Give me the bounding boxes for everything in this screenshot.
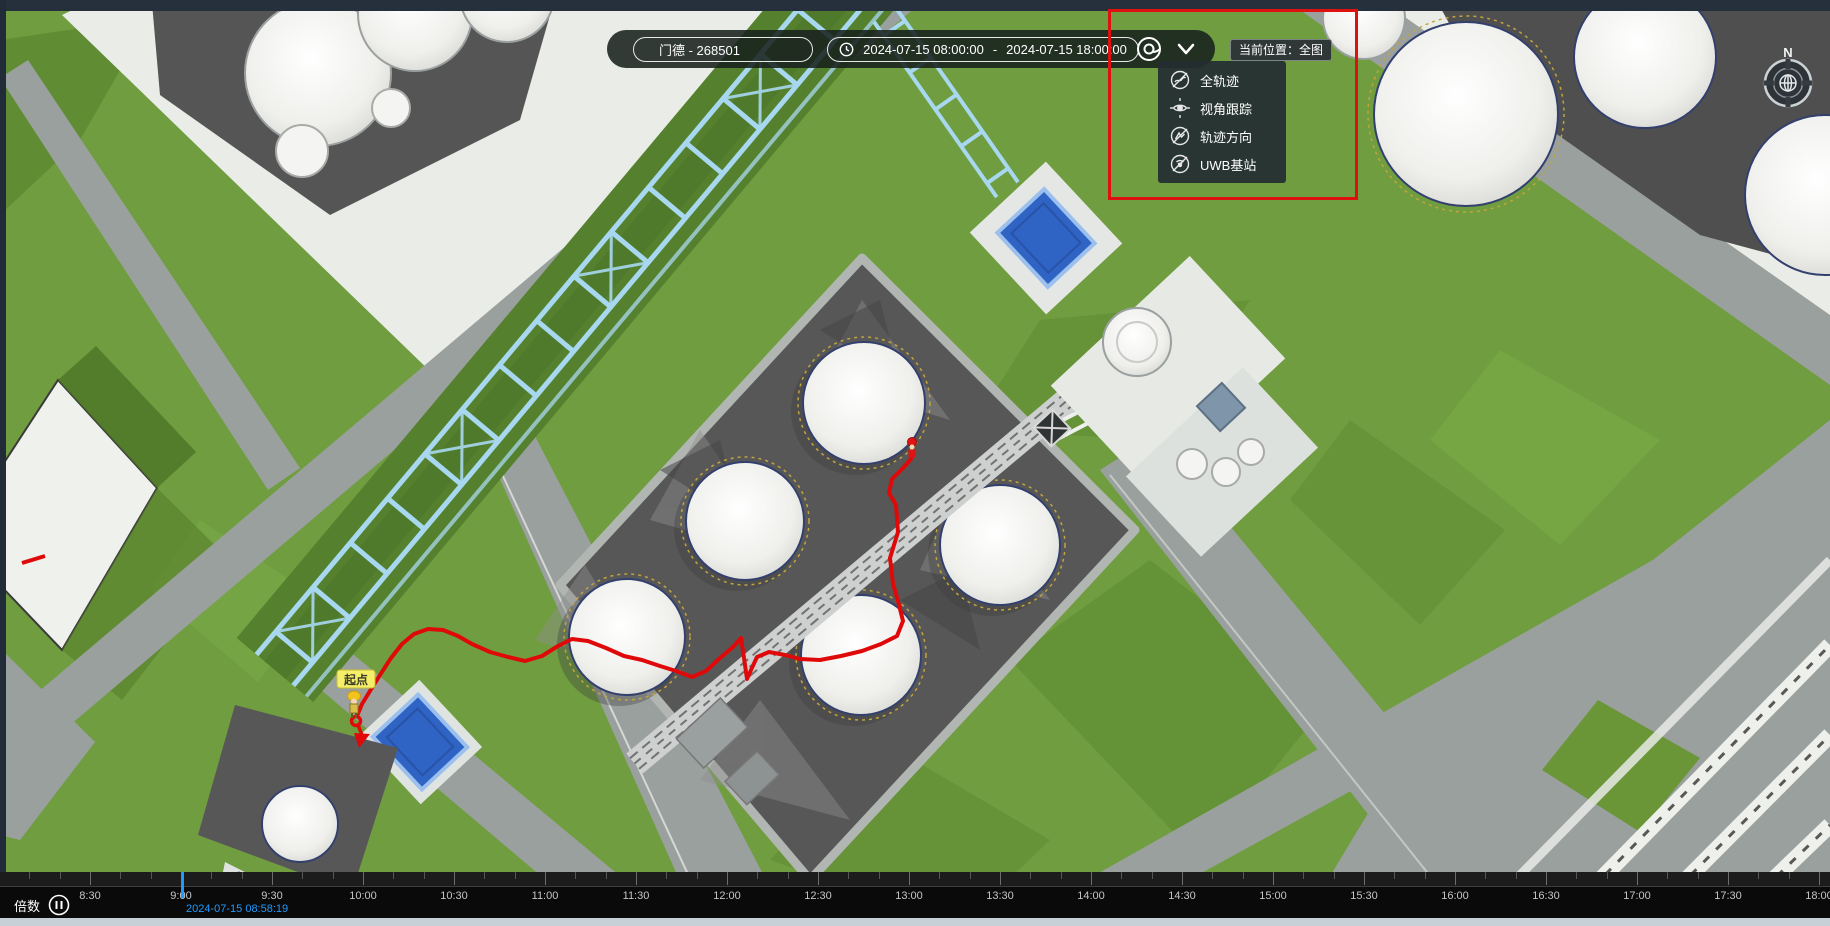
current-time-label: 2024-07-15 08:58:19 [186,903,288,915]
timeline-tick [60,872,61,879]
speed-label: 倍数 [14,896,40,915]
timeline-tick-label: 9:30 [261,890,282,902]
timeline-tick [697,872,698,879]
timeline-tick-label: 17:30 [1714,890,1742,902]
timeline-tick-label: 18:00 [1805,890,1830,902]
timeline-tick [879,872,880,879]
timeline-tick [909,872,910,885]
timeline-tick [1394,872,1395,879]
timeline-tick [545,872,546,885]
timeline-tick [1546,872,1547,885]
menu-item-track-direction[interactable]: 轨迹方向 [1158,122,1286,150]
playback-controls: 倍数 [14,894,70,916]
timeline-tick [1243,872,1244,879]
menu-item-uwb-station[interactable]: UWB基站 [1158,150,1286,178]
bottom-edge-strip [0,918,1830,926]
timeline-tick [515,872,516,879]
clock-icon [839,42,854,57]
timeline-tick [1819,872,1820,885]
timeline-tick-label: 12:00 [713,890,741,902]
timeline-tick-label: 15:30 [1350,890,1378,902]
timeline-tick [1455,872,1456,885]
timeline-tick-label: 15:00 [1259,890,1287,902]
timeline-tick [90,872,91,885]
timeline-tick [1303,872,1304,879]
time-start: 2024-07-15 08:00:00 [863,42,984,57]
timeline-tick [1485,872,1486,879]
time-end: 2024-07-15 18:00:00 [1006,42,1127,57]
time-separator: - [993,42,997,57]
menu-item-label: 视角跟踪 [1200,99,1252,118]
compass-north-label: N [1783,45,1792,60]
timeline-tick [939,872,940,879]
track-direction-icon [1169,125,1191,147]
timeline-tick [727,872,728,885]
chevron-down-icon [1173,38,1199,60]
timeline-tick [1061,872,1062,879]
timeline-tick-label: 16:30 [1532,890,1560,902]
timeline-tick [272,872,273,885]
timeline-tick [1607,872,1608,879]
timeline-tick [302,872,303,879]
timeline-bar[interactable]: 8:309:009:3010:0010:3011:0011:3012:0012:… [0,872,1830,918]
timeline-tick [484,872,485,879]
timeline-tick [1000,872,1001,885]
menu-item-label: UWB基站 [1200,155,1256,174]
pause-button[interactable] [48,894,70,916]
target-icon [1135,35,1163,63]
timeline-tick-label: 10:00 [349,890,377,902]
timeline-ruler[interactable] [0,872,1830,887]
timeline-tick [424,872,425,879]
timeline-tick [393,872,394,879]
timeline-tick-label: 13:00 [895,890,923,902]
timeline-tick [242,872,243,879]
timeline-tick [1091,872,1092,885]
timeline-tick [1789,872,1790,879]
timeline-tick-label: 8:30 [79,890,100,902]
timeline-tick [1364,872,1365,885]
timeline-tick [1637,872,1638,885]
app-stage: 起点 N 门德 - 268501 2024-07-15 08: [0,0,1830,926]
timeline-tick [606,872,607,879]
menu-item-view-tracking[interactable]: 视角跟踪 [1158,94,1286,122]
start-label: 起点 [337,670,375,688]
timeline-tick [1121,872,1122,879]
timeline-playhead[interactable] [181,872,184,898]
timeline-tick-label: 17:00 [1623,890,1651,902]
timeline-tick [1576,872,1577,879]
toolbar: 门德 - 268501 2024-07-15 08:00:00 - 2024-0… [607,30,1215,68]
start-label-text: 起点 [343,672,368,687]
timeline-tick [454,872,455,885]
layers-dropdown-menu: 全轨迹 视角跟踪 轨迹方向 UWB基站 [1158,61,1286,183]
timeline-tick [636,872,637,885]
eye-tracking-icon [1169,97,1191,119]
time-range-field[interactable]: 2024-07-15 08:00:00 - 2024-07-15 18:00:0… [827,37,1139,62]
timeline-tick-label: 10:30 [440,890,468,902]
frame-left [0,0,6,926]
timeline-tick [1182,872,1183,885]
timeline-tick [211,872,212,879]
timeline-tick-label: 11:00 [532,890,559,902]
timeline-tick [151,872,152,879]
timeline-tick [1667,872,1668,879]
timeline-tick [1728,872,1729,885]
timeline-tick-label: 14:00 [1077,890,1105,902]
timeline-tick-label: 12:30 [804,890,832,902]
timeline-tick-label: 14:30 [1168,890,1196,902]
locate-target-button[interactable] [1135,35,1163,63]
menu-item-label: 全轨迹 [1200,71,1239,90]
timeline-tick [1030,872,1031,879]
timeline-tick [818,872,819,885]
timeline-tick [666,872,667,879]
timeline-tick [1758,872,1759,879]
map-canvas[interactable]: 起点 N [0,0,1830,926]
person-tag-label: 门德 - 268501 [659,40,740,59]
timeline-tick [1152,872,1153,879]
timeline-tick [120,872,121,879]
timeline-tick [788,872,789,879]
uwb-station-icon [1169,153,1191,175]
track-circle-icon [1169,69,1191,91]
timeline-tick-label: 16:00 [1441,890,1469,902]
timeline-tick [1698,872,1699,879]
timeline-tick [848,872,849,879]
globe-icon [1780,75,1796,91]
timeline-tick [1273,872,1274,885]
timeline-tick-label: 11:30 [623,890,650,902]
current-location-badge: 当前位置：全图 [1230,39,1332,61]
timeline-tick [757,872,758,879]
timeline-tick [1425,872,1426,879]
timeline-tick [363,872,364,885]
timeline-tick [1334,872,1335,879]
timeline-tick [575,872,576,879]
timeline-tick [333,872,334,879]
timeline-tick [970,872,971,879]
timeline-tick [29,872,30,879]
timeline-tick-label: 13:30 [986,890,1014,902]
menu-item-full-track[interactable]: 全轨迹 [1158,66,1286,94]
timeline-tick [1516,872,1517,879]
frame-top [0,0,1830,11]
timeline-tick [1212,872,1213,879]
menu-item-label: 轨迹方向 [1200,127,1252,146]
person-tag-field[interactable]: 门德 - 268501 [633,37,813,62]
